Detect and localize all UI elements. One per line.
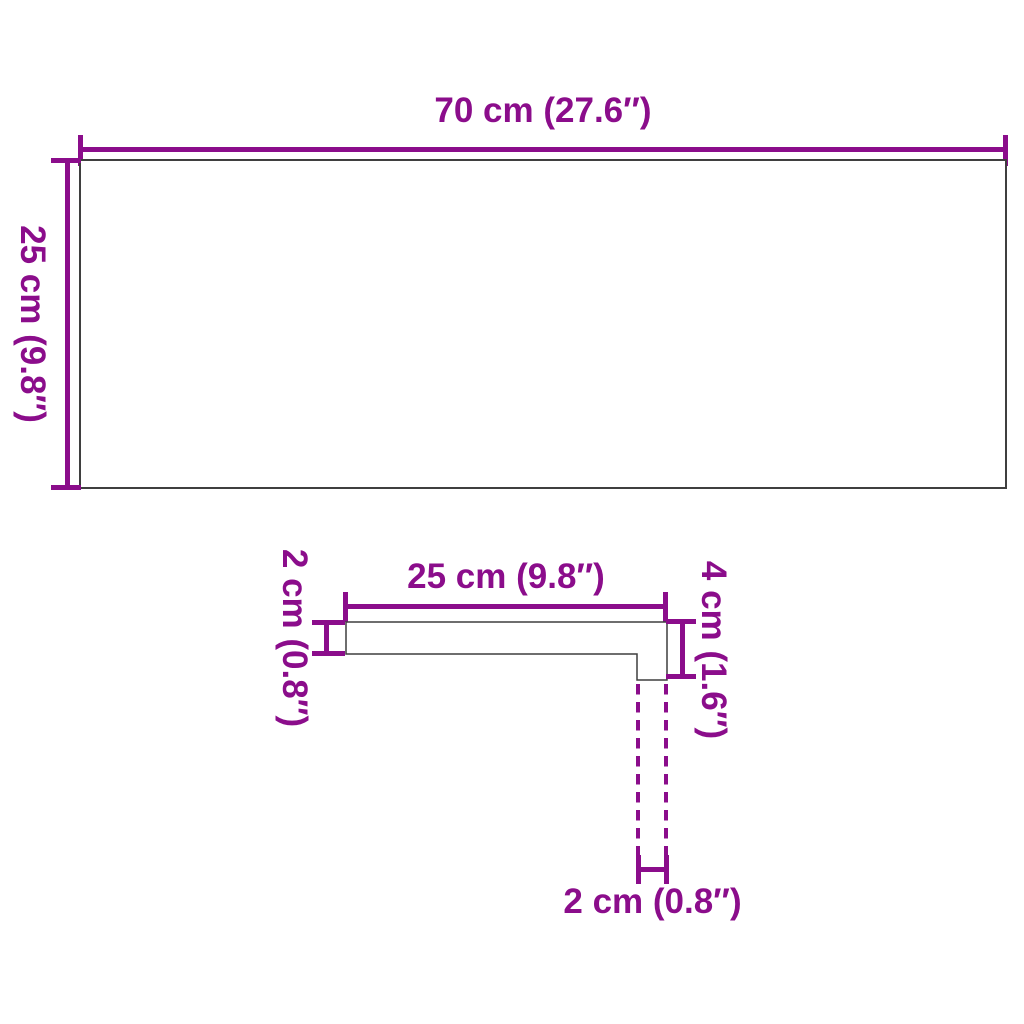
profile-nose-thickness-dimension-tick-left — [636, 855, 641, 884]
profile-thickness-label: 2 cm (0.8″) — [273, 549, 315, 727]
dimension-diagram: 70 cm (27.6″) 25 cm (9.8″) 25 cm (9.8″) … — [0, 0, 1024, 1024]
profile-nose-height-dimension-line — [680, 621, 685, 678]
profile-nose-extension-line-left — [636, 684, 640, 866]
profile-thickness-dimension-line — [324, 622, 329, 654]
profile-nose-thickness-dimension-tick-right — [664, 855, 669, 884]
profile-nose-thickness-label: 2 cm (0.8″) — [550, 881, 755, 923]
profile-thickness-dimension-tick-top — [312, 620, 345, 625]
profile-outline-polygon — [346, 622, 667, 680]
profile-nose-extension-line-right — [664, 684, 668, 866]
profile-cross-section — [0, 0, 1024, 1024]
profile-thickness-dimension-tick-bottom — [312, 651, 345, 656]
profile-nose-height-label: 4 cm (1.6″) — [692, 561, 734, 739]
